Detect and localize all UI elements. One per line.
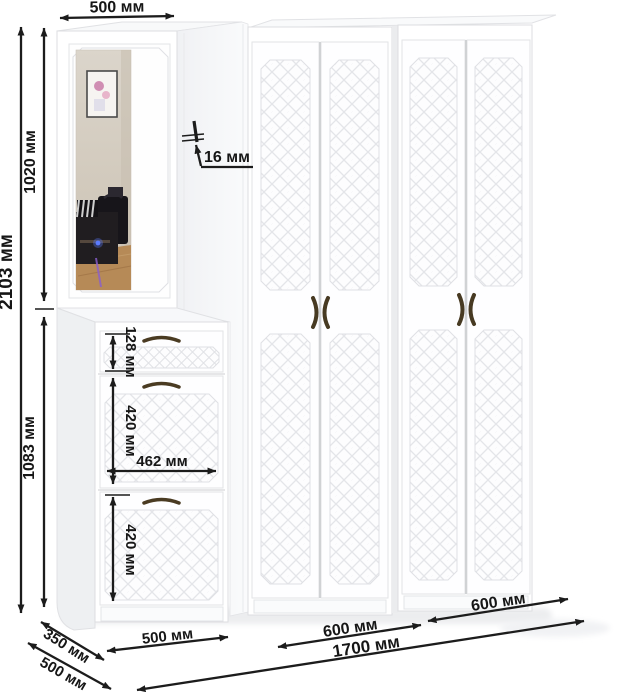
mirror-cabinet <box>57 31 177 312</box>
shoe-cabinet-side <box>57 308 95 630</box>
wardrobe-gap <box>392 26 398 613</box>
led-light <box>96 241 101 246</box>
dim-label-shoe-width: 500 мм <box>141 625 194 648</box>
dim-upper-height: 1020 мм <box>22 28 44 301</box>
dim-label-flap2-height: 420 мм <box>122 524 139 575</box>
dim-top-width: 500 мм <box>60 0 174 18</box>
dim-label-panel-thickness: 16 мм <box>204 149 250 166</box>
diagram-canvas: 500 мм 2103 мм 1020 мм 1083 мм 16 мм <box>0 0 637 700</box>
dim-label-total-height: 2103 мм <box>0 234 17 310</box>
dim-label-lower-height: 1083 мм <box>21 416 38 480</box>
dim-label-flap1-height: 420 мм <box>122 405 139 456</box>
nightstand <box>76 212 118 264</box>
dim-shoe-width: 500 мм <box>107 625 228 651</box>
dim-label-drawer-height: 128 мм <box>122 326 139 377</box>
wardrobe-1 <box>248 27 392 615</box>
dim-label-upper-height: 1020 мм <box>22 130 39 194</box>
wardrobe-2 <box>398 25 532 611</box>
wardrobe1-plinth <box>254 600 386 613</box>
dim-label-top-width: 500 мм <box>89 0 144 16</box>
shoe-cabinet-plinth <box>101 607 223 621</box>
dim-label-flap-width: 462 мм <box>136 453 187 470</box>
furniture-dimension-diagram: 500 мм 2103 мм 1020 мм 1083 мм 16 мм <box>0 0 637 700</box>
dim-lower-height: 1083 мм <box>21 309 54 607</box>
dim-total-height: 2103 мм <box>0 27 21 613</box>
